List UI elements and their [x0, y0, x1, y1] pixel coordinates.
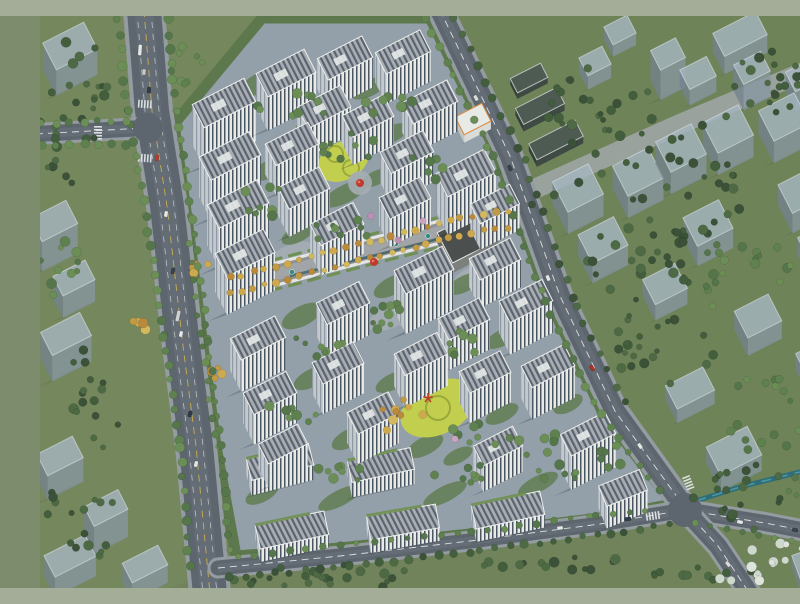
tree — [405, 536, 410, 541]
tree — [533, 191, 541, 199]
tree — [219, 457, 226, 464]
tree — [689, 158, 699, 168]
tree — [95, 141, 103, 149]
tree — [239, 288, 246, 295]
tree — [292, 88, 302, 98]
vehicle-body — [147, 87, 151, 93]
tree — [449, 550, 457, 558]
tree — [771, 91, 779, 99]
tree — [709, 350, 718, 359]
tree — [767, 100, 773, 106]
tree — [574, 178, 583, 187]
tree — [320, 250, 326, 256]
tree — [481, 227, 487, 233]
tree — [305, 418, 312, 425]
tree — [413, 244, 420, 251]
tree — [186, 561, 195, 570]
tree — [712, 476, 719, 483]
tree — [400, 397, 406, 403]
tree — [166, 376, 172, 382]
tree — [190, 260, 195, 265]
tree — [332, 264, 338, 270]
tree — [614, 345, 623, 354]
tree — [568, 516, 573, 521]
tree — [345, 562, 353, 570]
tree — [383, 426, 391, 434]
tree — [792, 63, 798, 69]
tree — [624, 223, 634, 233]
tree — [720, 256, 729, 265]
tree — [724, 526, 730, 532]
tree — [271, 568, 278, 575]
tree — [282, 583, 288, 588]
tree — [755, 532, 761, 538]
tree — [506, 434, 514, 442]
tree — [664, 253, 671, 260]
tree — [420, 218, 427, 225]
tree — [744, 445, 752, 453]
tree — [554, 460, 564, 470]
tree — [728, 184, 738, 194]
tree — [165, 44, 175, 54]
tree — [794, 81, 800, 89]
tree — [613, 384, 621, 392]
tree — [256, 571, 263, 578]
tree — [611, 240, 620, 249]
tree — [272, 279, 280, 287]
tree — [419, 553, 426, 560]
tree — [714, 486, 721, 493]
tree — [201, 321, 208, 328]
tree — [676, 259, 685, 268]
tree — [237, 273, 243, 279]
tree — [613, 99, 622, 108]
tree — [409, 154, 416, 161]
tree — [190, 276, 197, 283]
tree — [205, 378, 211, 384]
vehicle-body — [155, 155, 159, 161]
tree — [315, 235, 322, 242]
tree — [787, 262, 793, 268]
tree — [65, 140, 73, 148]
tree — [642, 508, 648, 514]
tree — [727, 576, 735, 584]
tree — [617, 363, 627, 373]
tree — [342, 244, 349, 251]
tree — [628, 257, 635, 264]
tree — [40, 141, 46, 150]
tree — [194, 53, 200, 59]
tree — [449, 16, 457, 22]
tree — [537, 541, 543, 547]
tree — [526, 176, 533, 183]
tree — [386, 302, 394, 310]
tree — [91, 135, 98, 142]
tree — [81, 530, 88, 537]
tree — [782, 557, 789, 564]
tree — [186, 240, 193, 247]
tree — [746, 99, 754, 107]
tree — [645, 475, 651, 481]
vehicle — [557, 526, 563, 530]
tree — [715, 574, 724, 583]
tree — [506, 209, 511, 214]
tree — [470, 348, 478, 356]
vehicle — [138, 44, 142, 55]
tree — [632, 162, 639, 169]
tree — [222, 503, 230, 511]
tree — [644, 89, 651, 96]
tree — [539, 208, 547, 216]
tree — [783, 541, 789, 547]
tree — [52, 157, 59, 164]
rendering-canvas — [40, 16, 800, 588]
tree — [302, 546, 309, 553]
tree — [164, 16, 174, 24]
tree — [479, 476, 485, 482]
tree — [178, 458, 187, 467]
tree — [573, 469, 580, 476]
tree — [227, 547, 233, 553]
tree — [567, 565, 577, 575]
tree — [550, 437, 559, 446]
tree — [119, 45, 127, 53]
tree — [61, 37, 71, 47]
tree — [251, 267, 258, 274]
tree — [356, 567, 365, 576]
tree — [639, 358, 649, 368]
tree — [436, 236, 443, 243]
tree — [675, 157, 683, 165]
tree — [407, 96, 417, 106]
tree — [431, 174, 441, 184]
tree — [639, 131, 645, 137]
tree — [776, 495, 783, 502]
tree — [678, 134, 684, 140]
tree — [344, 261, 350, 267]
tree — [205, 261, 212, 268]
tree — [172, 420, 181, 429]
tree — [249, 285, 256, 292]
tree — [470, 471, 476, 477]
tree — [282, 406, 292, 416]
tree — [309, 268, 315, 274]
tree — [573, 303, 581, 311]
tree — [69, 510, 75, 516]
tree — [684, 192, 692, 200]
tree — [452, 436, 459, 443]
tree — [67, 540, 74, 547]
tree — [108, 119, 114, 125]
aerial-rendering-residential-masterplan — [40, 16, 800, 588]
tree — [55, 267, 62, 274]
tree — [492, 226, 498, 232]
crosswalk-stripe — [94, 129, 102, 131]
tree — [555, 260, 563, 268]
tree — [562, 340, 570, 348]
tree — [212, 430, 220, 438]
tree — [597, 351, 603, 357]
tree — [354, 216, 363, 225]
tree — [328, 473, 338, 483]
vehicle-body — [625, 517, 631, 521]
tree — [212, 399, 218, 405]
tree — [264, 401, 274, 411]
tree — [174, 108, 180, 114]
tree — [162, 347, 170, 355]
tree — [540, 434, 549, 443]
tree — [592, 150, 600, 158]
sphere-highlight — [372, 260, 375, 263]
tree — [375, 558, 384, 567]
vehicle — [155, 155, 159, 161]
tree — [469, 422, 478, 431]
tree — [708, 524, 713, 529]
tree — [165, 361, 173, 369]
tree — [256, 106, 263, 113]
tree — [199, 59, 205, 65]
tree — [514, 144, 523, 153]
tree — [167, 75, 176, 84]
tree — [607, 423, 615, 431]
tree — [80, 506, 88, 514]
tree — [665, 260, 673, 268]
tree — [124, 107, 132, 115]
tree — [376, 253, 382, 259]
tree — [177, 136, 184, 143]
tree — [48, 89, 56, 97]
tree — [612, 441, 621, 450]
tree — [388, 537, 394, 543]
tree — [121, 90, 130, 99]
tree — [188, 215, 197, 224]
tree — [51, 134, 60, 143]
tree — [710, 161, 720, 171]
tree — [181, 487, 188, 494]
tree — [155, 302, 162, 309]
tree — [153, 286, 161, 294]
tree — [387, 233, 395, 241]
tree — [755, 570, 761, 576]
tree — [724, 161, 730, 167]
tree — [369, 136, 378, 145]
tree — [772, 535, 778, 541]
tree — [592, 512, 599, 519]
tree — [284, 276, 291, 283]
tree — [481, 562, 487, 568]
tree — [123, 118, 131, 126]
tree — [712, 279, 719, 286]
tree — [689, 494, 698, 503]
tree — [467, 439, 473, 445]
tree — [717, 471, 723, 477]
tree — [193, 246, 201, 254]
tree — [683, 571, 692, 580]
tree — [370, 307, 378, 315]
tree — [192, 231, 198, 237]
tree — [251, 552, 258, 559]
tree — [501, 526, 508, 533]
tree — [633, 297, 638, 302]
tree — [776, 73, 784, 81]
tree — [456, 214, 463, 221]
tree — [368, 108, 377, 117]
tree — [651, 572, 657, 578]
tree — [79, 398, 88, 407]
tree — [313, 352, 321, 360]
tree — [286, 570, 293, 577]
tree — [183, 182, 192, 191]
tree — [520, 243, 526, 249]
tree — [67, 269, 76, 278]
tree — [200, 292, 206, 298]
tree — [464, 464, 472, 472]
tree — [533, 520, 541, 528]
tree — [365, 154, 372, 161]
tree — [665, 319, 670, 324]
crosswalk-stripe — [94, 132, 102, 134]
tree — [526, 258, 532, 264]
tree — [435, 551, 444, 560]
tree — [388, 415, 398, 425]
tree — [320, 149, 328, 157]
tree — [769, 560, 775, 566]
tree — [468, 528, 476, 536]
tree — [389, 250, 395, 256]
tree — [174, 123, 183, 132]
tree — [388, 322, 393, 327]
tree — [72, 247, 82, 257]
tree — [303, 341, 308, 346]
tree — [770, 430, 778, 438]
tree — [498, 562, 508, 572]
tree — [151, 271, 159, 279]
tree — [396, 101, 406, 111]
tree — [507, 542, 514, 549]
tree — [623, 159, 630, 166]
tree — [755, 576, 765, 586]
tree — [528, 201, 535, 208]
tree — [604, 366, 610, 372]
tree — [629, 91, 638, 100]
tree — [607, 530, 616, 539]
tree — [579, 320, 586, 327]
tree — [780, 387, 787, 394]
tree — [550, 191, 559, 200]
tree — [494, 169, 501, 176]
tree — [489, 151, 498, 160]
tree — [130, 318, 137, 325]
tree — [87, 376, 94, 383]
tree — [768, 48, 776, 56]
tree — [183, 546, 192, 555]
tree — [606, 285, 615, 294]
tree — [746, 562, 756, 572]
tree — [81, 139, 90, 148]
tree — [474, 61, 483, 70]
tree — [651, 523, 657, 529]
tree — [740, 60, 746, 66]
tree — [159, 333, 168, 342]
tree — [702, 174, 707, 179]
tree — [69, 180, 75, 186]
tree — [630, 353, 636, 359]
tree — [400, 247, 406, 253]
tree — [81, 119, 89, 127]
umbrella — [290, 270, 295, 275]
tree — [209, 367, 216, 374]
tree — [637, 462, 644, 469]
tree — [343, 573, 352, 582]
vehicle-body — [164, 211, 169, 218]
tree — [622, 350, 627, 355]
tree — [597, 233, 604, 240]
tree — [243, 574, 250, 581]
tree — [247, 580, 255, 588]
tree — [353, 540, 358, 545]
tree — [516, 522, 523, 529]
tree — [444, 59, 452, 67]
tree — [366, 238, 373, 245]
tree — [269, 550, 277, 558]
tree — [138, 318, 148, 328]
tree — [702, 360, 710, 368]
tree — [615, 459, 625, 469]
tree — [334, 340, 343, 349]
tree — [94, 117, 100, 123]
tree — [330, 247, 337, 254]
tree — [201, 306, 209, 314]
tree — [50, 291, 57, 298]
tree — [113, 16, 120, 23]
tree — [260, 266, 266, 272]
tree — [445, 234, 452, 241]
tree — [776, 83, 783, 90]
tree — [546, 311, 555, 320]
tree — [667, 521, 673, 527]
tree — [68, 58, 78, 68]
tree — [181, 80, 188, 87]
tree — [765, 80, 771, 86]
tree — [554, 113, 564, 123]
tree — [757, 253, 762, 258]
tree — [185, 197, 193, 205]
tree — [488, 94, 496, 102]
tree — [506, 126, 515, 135]
tree — [361, 97, 371, 107]
tree — [636, 246, 646, 256]
vehicle-body — [557, 526, 563, 530]
tree — [562, 471, 568, 477]
tree — [700, 332, 707, 339]
tree — [96, 498, 104, 506]
tree — [575, 369, 583, 377]
tree — [541, 297, 550, 306]
tree — [655, 324, 661, 330]
tree — [401, 567, 408, 574]
tree — [395, 237, 402, 244]
tree — [91, 97, 97, 103]
tree — [570, 355, 577, 362]
tree — [550, 538, 556, 544]
tree — [90, 396, 99, 405]
tree — [133, 153, 140, 160]
tree — [649, 353, 657, 361]
tree — [524, 452, 530, 458]
tree — [319, 543, 326, 550]
tree — [40, 258, 44, 264]
tree — [481, 78, 490, 87]
